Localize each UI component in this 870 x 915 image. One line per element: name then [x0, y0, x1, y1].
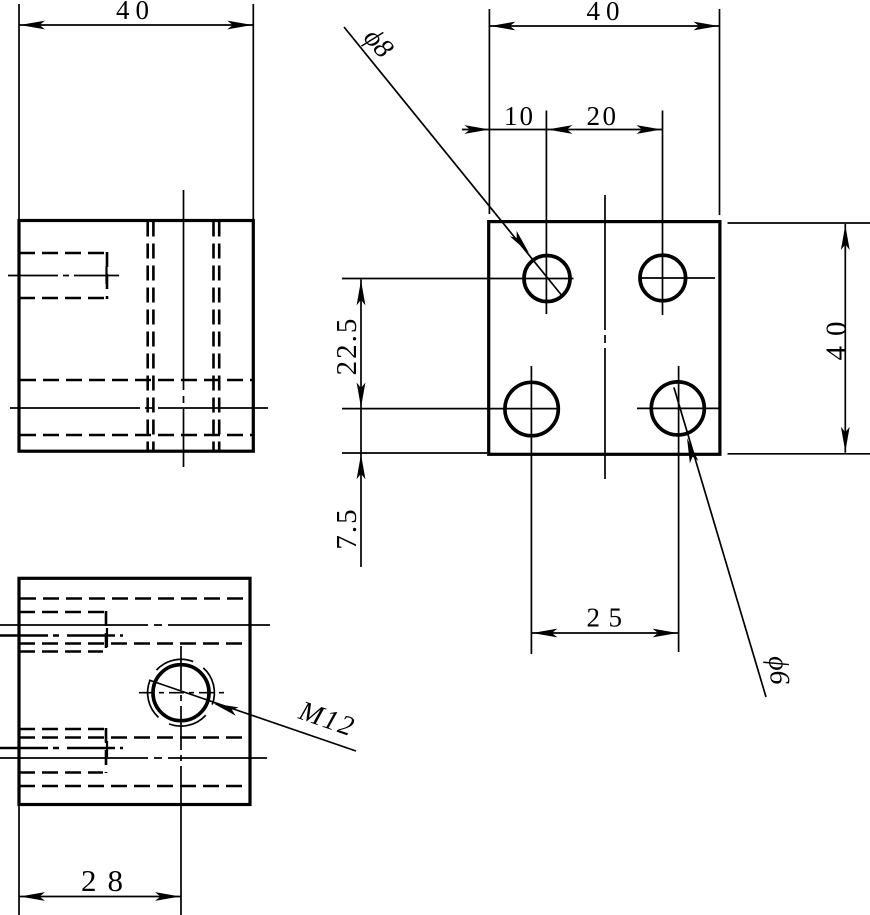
svg-text:20: 20 [587, 101, 619, 131]
svg-text:7.5: 7.5 [331, 507, 363, 549]
svg-text:25: 25 [587, 603, 631, 633]
svg-text:40: 40 [587, 0, 626, 26]
svg-text:28: 28 [81, 863, 134, 898]
svg-text:40: 40 [821, 312, 853, 361]
svg-text:10: 10 [504, 101, 535, 131]
svg-text:ϕ6: ϕ6 [762, 655, 795, 686]
svg-text:40: 40 [116, 0, 155, 25]
svg-text:22.5: 22.5 [331, 317, 363, 376]
